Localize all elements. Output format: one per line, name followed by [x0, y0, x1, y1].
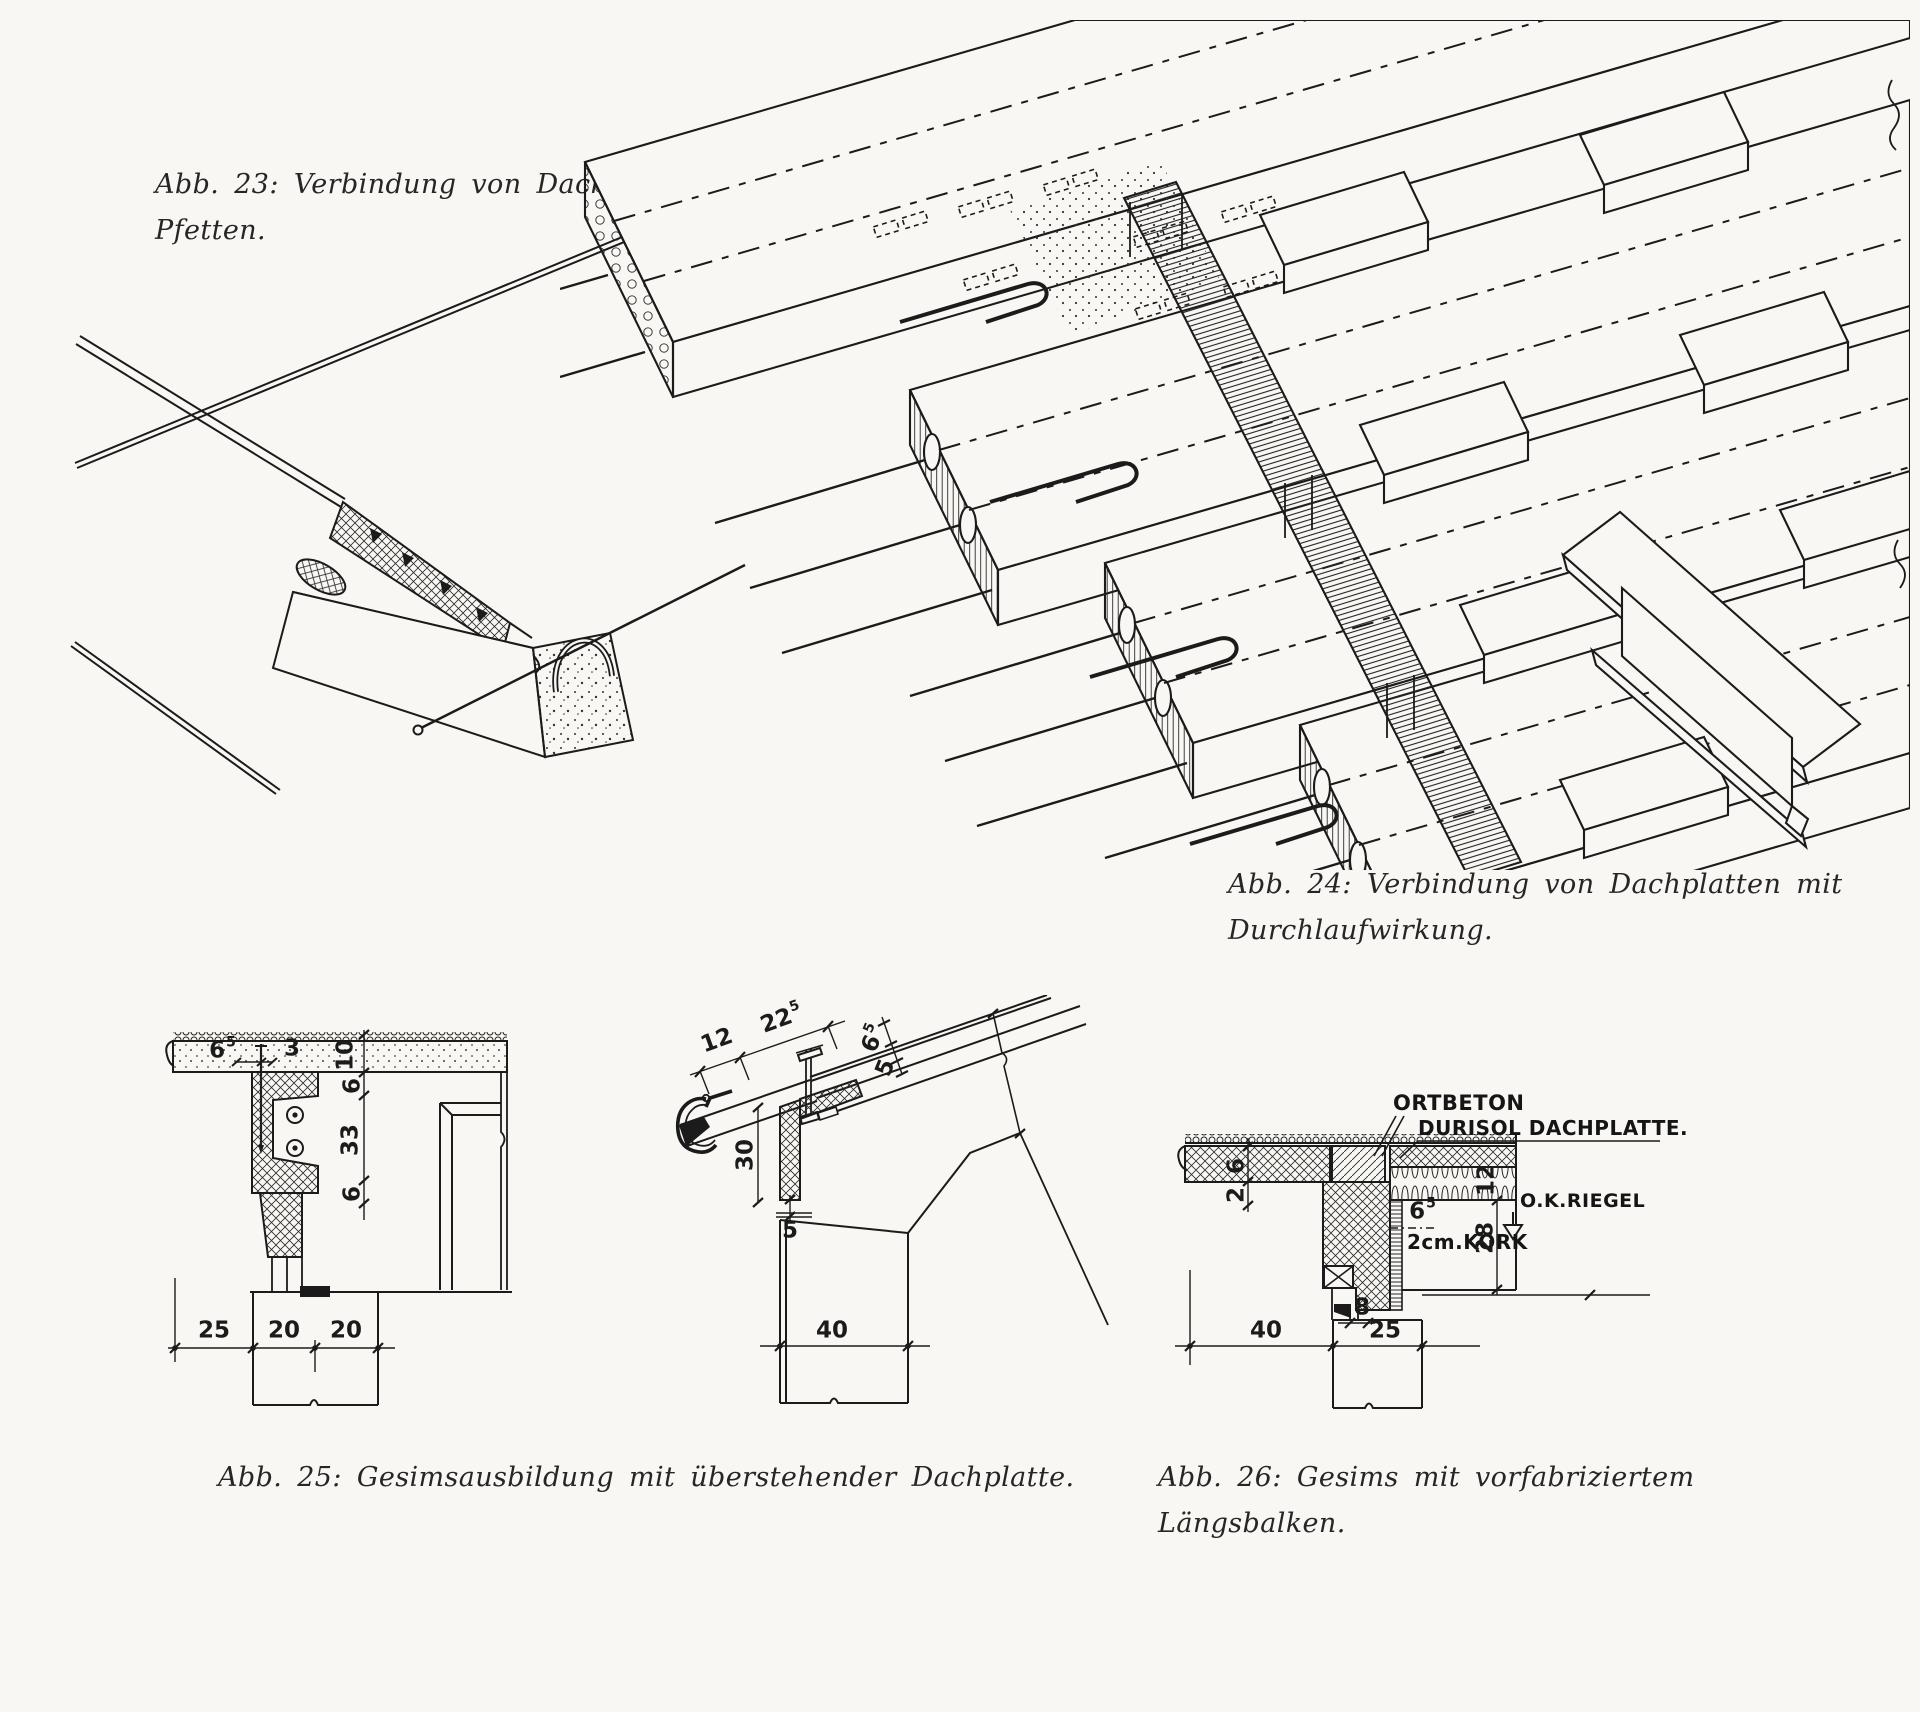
fig26-detail: ORTBETON DURISOL DACHPLATTE. O.K.RIEGEL …: [1160, 1080, 1780, 1480]
dim-10: 10: [335, 1039, 358, 1071]
dim-6-5-sup: 5: [226, 1035, 236, 1051]
dim-30: 30: [735, 1139, 758, 1171]
fig26-caption-line1: Abb. 26: Gesims mit vorfabriziertem: [1158, 1455, 1695, 1501]
dim-3: 3: [284, 1038, 300, 1061]
dim-6-5-riegel-sup: 5: [1426, 1196, 1436, 1212]
fig26-caption: Abb. 26: Gesims mit vorfabriziertem Läng…: [1158, 1455, 1695, 1547]
fig25-right-detail: 12 225 65 5 30 5 40: [660, 995, 1130, 1445]
dim-20-a: 20: [268, 1320, 300, 1343]
ortbeton-label: ORTBETON: [1393, 1093, 1525, 1114]
fig24-caption-line2: Durchlaufwirkung.: [1228, 908, 1843, 954]
dim-40: 40: [816, 1320, 848, 1343]
dim-6-plate: 6: [1226, 1158, 1249, 1174]
dim-20-b: 20: [330, 1320, 362, 1343]
dim-5-bottom: 5: [782, 1220, 798, 1243]
fig24-caption-line1: Abb. 24: Verbindung von Dachplatten mit: [1228, 862, 1843, 908]
scanned-book-page: Abb. 23: Verbindung von Dachplatten mit …: [0, 0, 1920, 1712]
dim-40-fig26: 40: [1250, 1320, 1282, 1343]
fig24-figure: [560, 20, 1910, 870]
dim-33: 33: [340, 1124, 363, 1156]
fig25-left-drawing: [150, 1020, 590, 1430]
dim-6-5-riegel: 65: [1409, 1199, 1435, 1224]
fig26-caption-line2: Längsbalken.: [1158, 1501, 1695, 1547]
fig24-caption: Abb. 24: Verbindung von Dachplatten mit …: [1228, 862, 1843, 954]
fig25-caption-line1: Abb. 25: Gesimsausbildung mit überstehen…: [218, 1455, 1075, 1501]
dim-6-5-riegel-main: 6: [1409, 1198, 1425, 1224]
dim-25: 25: [198, 1320, 230, 1343]
fig25-left-detail: 65 3 10 6 33 6 25 20 20: [150, 1020, 590, 1430]
durisol-dachplatte-label: DURISOL DACHPLATTE.: [1418, 1118, 1688, 1138]
dim-28: 28: [1475, 1222, 1498, 1254]
kork-label: 2cm.KORK: [1407, 1232, 1528, 1252]
fig25-caption: Abb. 25: Gesimsausbildung mit überstehen…: [218, 1455, 1075, 1501]
dim-6-upper: 6: [342, 1078, 365, 1094]
fig26-drawing: [1160, 1080, 1780, 1480]
dim-6-5: 65: [209, 1038, 235, 1063]
dim-6-lower: 6: [342, 1186, 365, 1202]
dim-2-layer: 2: [1226, 1187, 1249, 1203]
dim-8: 8: [1354, 1297, 1370, 1320]
ok-riegel-label: O.K.RIEGEL: [1520, 1192, 1645, 1211]
dim-12-woodwool: 12: [1476, 1164, 1499, 1196]
dim-6-5-main: 6: [209, 1037, 225, 1063]
fig24-isometric-drawing: [560, 20, 1910, 870]
dim-25-fig26: 25: [1369, 1320, 1401, 1343]
